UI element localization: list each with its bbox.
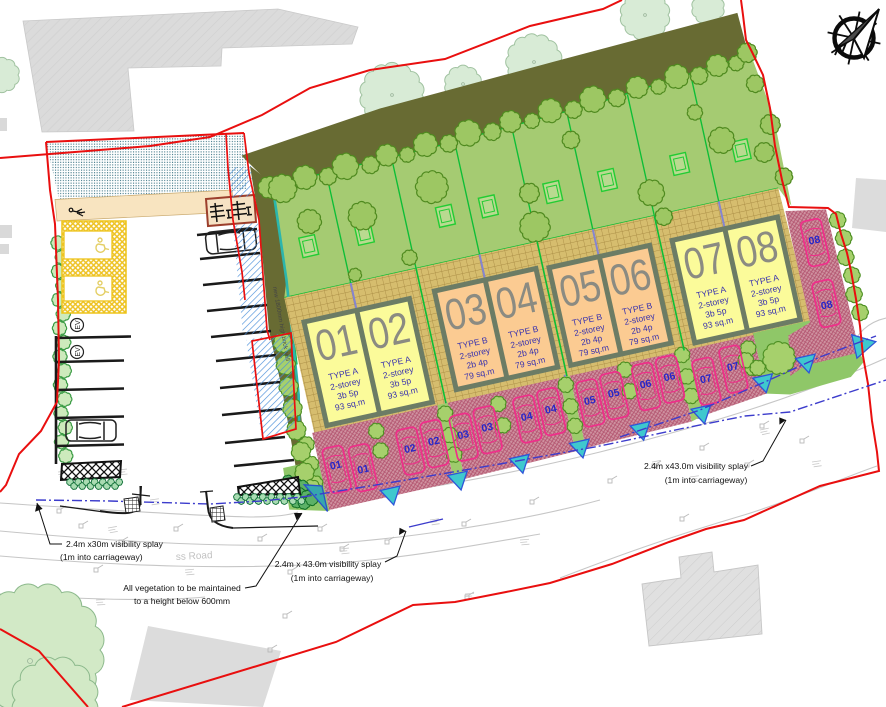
svg-text:(1m into carriageway): (1m into carriageway) [60,552,143,562]
svg-text:2.4m x30m visibility splay: 2.4m x30m visibility splay [66,539,164,549]
svg-text:(1m into carriageway): (1m into carriageway) [665,475,748,485]
svg-text:EV: EV [75,347,82,357]
svg-text:to a height below 600mm: to a height below 600mm [134,596,230,606]
svg-text:EV: EV [75,320,82,330]
svg-text:2.4m x43.0m visibility splay: 2.4m x43.0m visibility splay [644,461,749,471]
svg-text:(1m into carriageway): (1m into carriageway) [291,573,374,583]
svg-text:ss Road: ss Road [176,550,213,563]
svg-text:All vegetation to be maintaine: All vegetation to be maintained [123,583,241,593]
svg-text:2.4m x 43.0m visibility splay: 2.4m x 43.0m visibility splay [275,559,382,569]
